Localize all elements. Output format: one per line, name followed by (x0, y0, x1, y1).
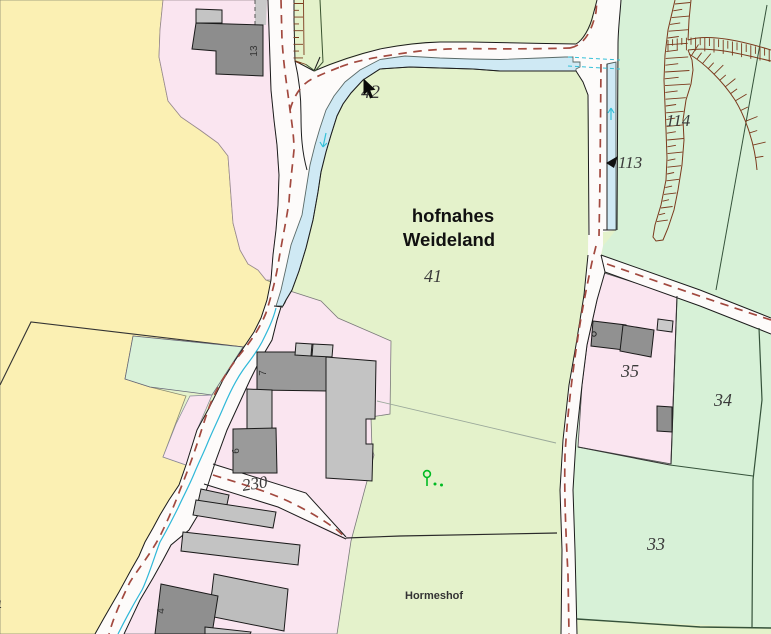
svg-text:13: 13 (249, 45, 260, 57)
svg-text:Hormeshof: Hormeshof (405, 590, 463, 602)
svg-text:Weideland: Weideland (403, 229, 495, 250)
svg-text:114: 114 (666, 111, 691, 130)
svg-text:230: 230 (241, 472, 270, 495)
svg-text:4: 4 (156, 608, 167, 614)
svg-text:hofnahes: hofnahes (412, 205, 494, 226)
svg-text:35: 35 (620, 361, 639, 381)
svg-text:33: 33 (646, 534, 665, 554)
svg-text:6: 6 (231, 448, 242, 454)
svg-text:34: 34 (713, 390, 732, 410)
svg-text:41: 41 (424, 266, 442, 286)
svg-text:113: 113 (618, 153, 642, 172)
svg-text:7: 7 (258, 370, 269, 376)
